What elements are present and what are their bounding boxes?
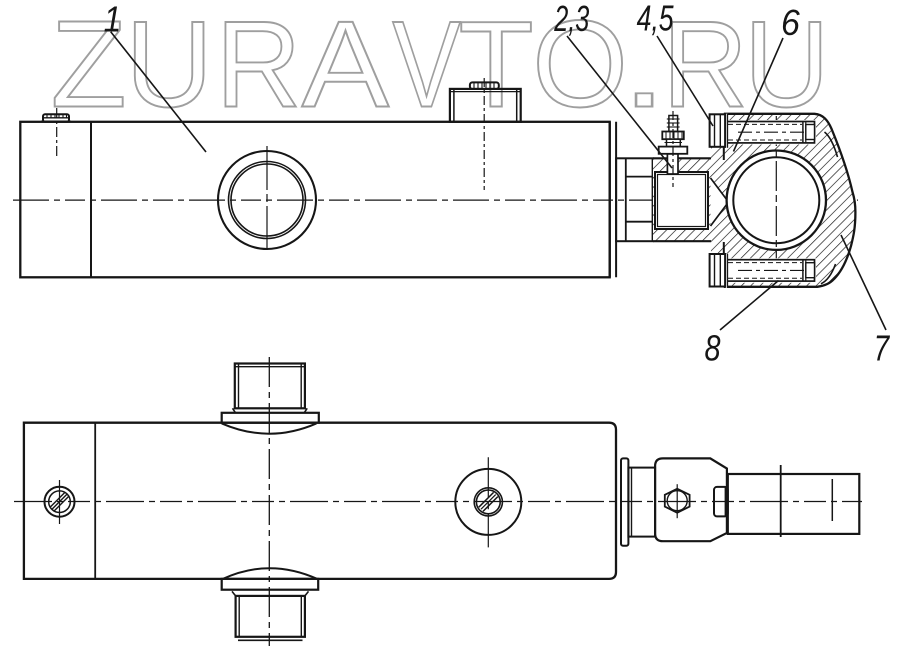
svg-text:T: T [459, 0, 534, 133]
svg-text:6: 6 [781, 3, 800, 43]
svg-text:8: 8 [705, 327, 721, 368]
svg-text:2,3: 2,3 [553, 0, 589, 39]
svg-text:7: 7 [874, 328, 890, 368]
svg-text:4,5: 4,5 [637, 0, 674, 38]
svg-text:1: 1 [104, 0, 122, 40]
svg-text:A: A [302, 0, 390, 133]
svg-text:R: R [216, 0, 302, 133]
